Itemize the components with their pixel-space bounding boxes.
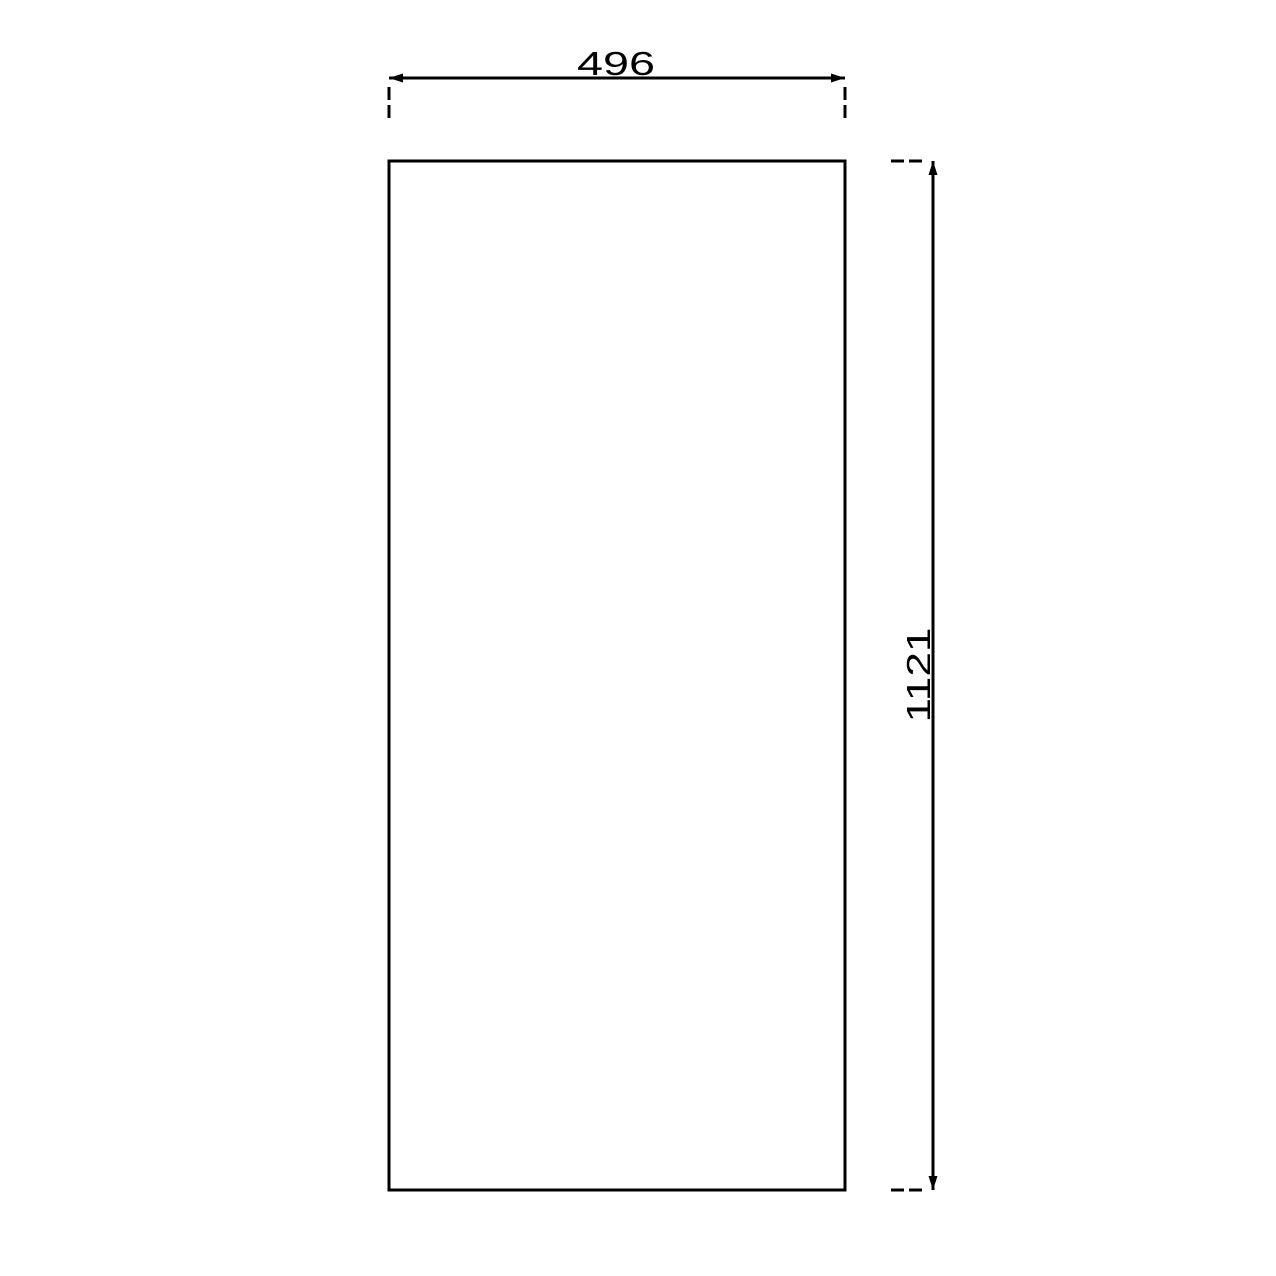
width-arrowhead-left [389,74,403,83]
height-dimension-label: 1121 [900,628,937,723]
cad-drawing: 496 1121 [0,0,1276,1276]
height-arrowhead-bottom [929,1176,938,1190]
drawing-canvas: 496 1121 [0,0,1276,1276]
height-arrowhead-top [929,161,938,175]
width-dimension: 496 [389,45,845,121]
height-dimension: 1121 [891,161,938,1190]
width-dimension-label: 496 [577,45,655,82]
panel-outline-rect [389,161,845,1190]
width-arrowhead-right [831,74,845,83]
